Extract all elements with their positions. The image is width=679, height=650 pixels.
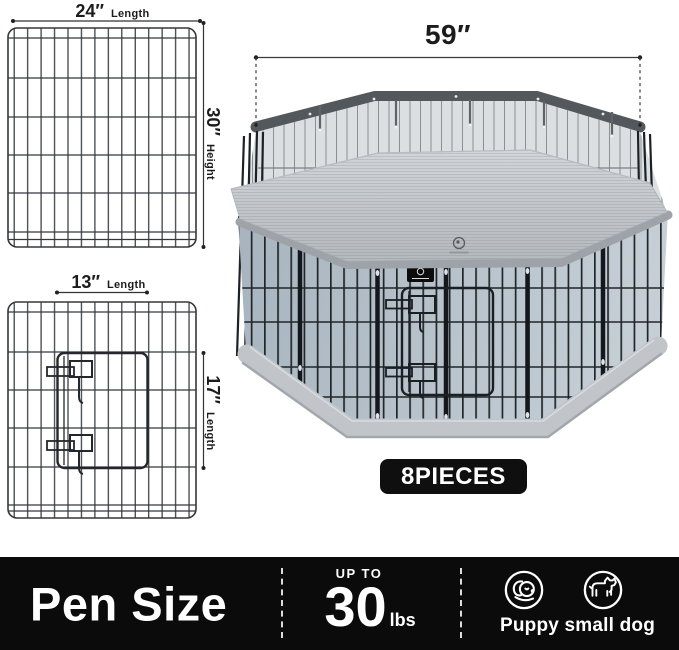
dimension-30-height: 30″ Height [202, 21, 224, 249]
weight-value: 30 [324, 582, 386, 632]
dimension-24-length: 24″ Length [11, 1, 202, 23]
dim-17-word: Length [204, 412, 216, 450]
dimension-17-length: 17″ Length [202, 351, 224, 470]
dim-30-word: Height [204, 144, 216, 180]
pen-illustration: 59″ [231, 19, 670, 437]
panel-24x30 [8, 28, 196, 247]
footer-title: Pen Size [30, 576, 227, 631]
illustration-canvas: 24″ Length 30″ Height 13″ Length [0, 0, 679, 557]
footer-divider-1 [281, 568, 283, 638]
wire-grid-door-panel [8, 302, 196, 518]
weight-unit: lbs [390, 610, 416, 631]
dim-24-value: 24″ [75, 1, 104, 21]
dim-13-value: 13″ [71, 272, 100, 292]
dim-59-value: 59″ [425, 19, 471, 50]
dim-13-word: Length [107, 279, 145, 291]
dim-24-word: Length [111, 8, 149, 20]
weight-block: UP TO 30 lbs [316, 566, 424, 632]
dimension-13-length: 13″ Length [55, 272, 149, 295]
small-dog-icon [582, 569, 624, 611]
product-infographic: 24″ Length 30″ Height 13″ Length [0, 0, 679, 650]
dog-size-block: Puppy small dog [478, 569, 648, 637]
footer-divider-2 [460, 568, 462, 638]
pieces-badge: 8PIECES [380, 459, 527, 494]
wire-grid-large [8, 28, 196, 247]
dim-30-value: 30″ [203, 107, 223, 136]
puppy-icon [503, 569, 545, 611]
dog-size-label: Puppy small dog [478, 615, 648, 637]
dim-17-value: 17″ [203, 375, 223, 404]
footer-bar: Pen Size UP TO 30 lbs [0, 557, 679, 650]
panel-with-door [8, 302, 196, 518]
